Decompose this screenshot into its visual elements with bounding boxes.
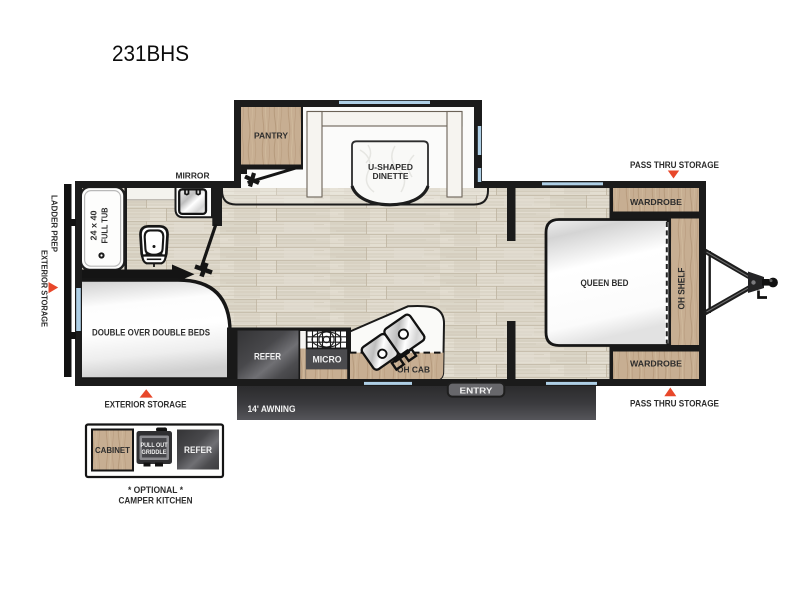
svg-text:REFER: REFER — [184, 445, 213, 455]
svg-text:REFER: REFER — [254, 352, 282, 362]
svg-text:EXTERIOR STORAGE: EXTERIOR STORAGE — [40, 250, 50, 327]
svg-text:24 x 40: 24 x 40 — [90, 210, 99, 241]
svg-text:PASS THRU STORAGE: PASS THRU STORAGE — [630, 399, 719, 409]
svg-text:GRIDDLE: GRIDDLE — [142, 450, 167, 456]
svg-text:LADDER PREP: LADDER PREP — [50, 195, 60, 252]
svg-text:CABINET: CABINET — [95, 446, 130, 455]
svg-text:WARDROBE: WARDROBE — [630, 360, 683, 369]
svg-text:DOUBLE OVER DOUBLE BEDS: DOUBLE OVER DOUBLE BEDS — [92, 328, 210, 338]
svg-text:MIRROR: MIRROR — [176, 171, 210, 181]
svg-text:FULL TUB: FULL TUB — [101, 207, 110, 243]
svg-text:* OPTIONAL *: * OPTIONAL * — [128, 484, 183, 495]
svg-text:CAMPER KITCHEN: CAMPER KITCHEN — [119, 495, 193, 506]
svg-text:PULL OUT: PULL OUT — [141, 443, 168, 449]
svg-text:MICRO: MICRO — [313, 355, 342, 365]
svg-text:EXTERIOR STORAGE: EXTERIOR STORAGE — [105, 400, 187, 410]
svg-text:ENTRY: ENTRY — [460, 385, 493, 395]
svg-text:OH SHELF: OH SHELF — [677, 267, 687, 309]
svg-text:14' AWNING: 14' AWNING — [248, 404, 296, 414]
svg-text:DINETTE: DINETTE — [373, 171, 409, 181]
svg-text:PASS THRU STORAGE: PASS THRU STORAGE — [630, 160, 719, 170]
svg-text:QUEEN BED: QUEEN BED — [581, 278, 629, 288]
svg-text:231BHS: 231BHS — [112, 41, 189, 66]
svg-text:PANTRY: PANTRY — [254, 131, 288, 141]
svg-text:WARDROBE: WARDROBE — [630, 198, 683, 207]
